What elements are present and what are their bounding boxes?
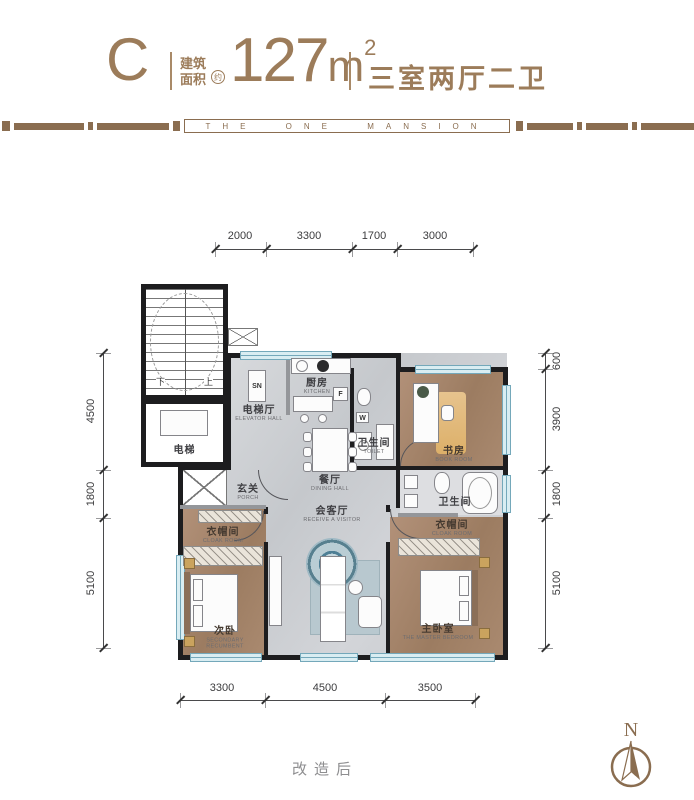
area-unit: m (327, 45, 364, 89)
window (370, 653, 495, 662)
band-square (88, 122, 93, 130)
window (190, 653, 262, 662)
area-label-top: 建筑 (180, 56, 206, 72)
band-title: THE ONE MANSION (184, 119, 510, 133)
dim-bottom-2: 4500 (313, 682, 337, 694)
stove-icon (317, 360, 329, 372)
storage-closet (181, 468, 227, 507)
toilet-fixture (357, 388, 371, 406)
bath-sink (404, 494, 418, 508)
dim-top-2: 3300 (297, 230, 321, 242)
wall-segment (178, 465, 230, 470)
band-bar (97, 123, 169, 130)
washer-box: W (356, 412, 369, 423)
pillow (193, 605, 203, 627)
kitchen-island (293, 396, 333, 412)
layout-description: 三室两厅二卫 (368, 57, 548, 96)
wall-segment (396, 368, 400, 508)
dim-bottom-1: 3300 (210, 682, 234, 694)
dining-chair (303, 447, 312, 457)
wall-segment (386, 542, 390, 658)
dining-chair (348, 432, 357, 442)
elevator: 电梯 (141, 399, 228, 467)
wall-segment (350, 466, 400, 470)
title-divider-2 (349, 52, 351, 90)
fridge-box: F (333, 387, 348, 401)
dim-left-3: 5100 (85, 571, 97, 595)
title-divider-1 (170, 52, 172, 90)
dim-top-3: 1700 (362, 230, 386, 242)
renovation-note: 改造后 (292, 758, 358, 779)
pillow (459, 576, 469, 596)
toilet-fixture (434, 472, 450, 494)
band-square (173, 121, 180, 131)
kitchen-sink (296, 360, 308, 372)
area-value: 127 (230, 30, 327, 92)
pillow (193, 579, 203, 601)
dim-top-4: 3000 (423, 230, 447, 242)
dim-line-left (103, 353, 104, 648)
area-label-bottom: 面积 (180, 72, 206, 88)
dim-right-2: 3900 (551, 407, 563, 431)
bed-master (420, 570, 472, 626)
dining-chair (303, 462, 312, 472)
window (300, 653, 358, 662)
band-square (516, 121, 523, 131)
coffee-table (348, 580, 363, 595)
band-bar (14, 123, 84, 130)
approx-mark: 约 (211, 70, 225, 84)
bed-headboard (472, 570, 478, 626)
dim-line-top (215, 249, 473, 250)
bed-secondary (190, 574, 238, 632)
stair-up-label: 上 (204, 378, 213, 387)
washer-drum (358, 440, 369, 451)
window (502, 385, 511, 455)
plant-icon (417, 386, 429, 398)
wardrobe (398, 538, 480, 556)
wall-segment (286, 353, 290, 415)
compass-needle-filled (631, 741, 640, 780)
floorplan-page: C 建筑 面积 约 127 m 2 三室两厅二卫 THE ONE MANSION… (0, 0, 694, 800)
dim-right-1: 600 (551, 352, 563, 370)
bathtub-basin (468, 477, 492, 509)
tv-cabinet (269, 556, 282, 626)
bathtub (462, 472, 498, 514)
bath-sink (404, 475, 418, 489)
wall-segment (226, 353, 231, 470)
dim-right-4: 5100 (551, 571, 563, 595)
window (502, 475, 511, 513)
compass: N (604, 718, 658, 796)
stool (318, 414, 327, 423)
cloak-shelf (198, 510, 262, 523)
shaft-box (228, 328, 258, 346)
dim-left-2: 1800 (85, 482, 97, 506)
dining-chair (348, 462, 357, 472)
wall-segment (180, 505, 266, 509)
dining-chair (303, 432, 312, 442)
nightstand (184, 558, 195, 569)
window (415, 365, 491, 374)
dim-bottom-3: 3500 (418, 682, 442, 694)
wardrobe (183, 546, 263, 566)
compass-north-label: N (624, 719, 638, 741)
elevator-label: 电梯 (146, 441, 223, 456)
dining-table (312, 428, 348, 472)
book-room-mat (436, 392, 466, 454)
band-square (2, 121, 10, 131)
dining-chair (348, 447, 357, 457)
dim-line-bottom (180, 700, 475, 701)
stool (300, 414, 309, 423)
sn-shaft: SN (248, 370, 266, 402)
dim-right-3: 1800 (551, 482, 563, 506)
band-square (577, 122, 582, 130)
band-bar (527, 123, 573, 130)
band-bar (586, 123, 628, 130)
nightstand (184, 636, 195, 647)
stairwell: 下 上 (141, 284, 228, 400)
pillow (459, 601, 469, 621)
unit-type-letter: C (106, 30, 149, 90)
area-superscript: 2 (364, 37, 376, 59)
band-bar (641, 123, 694, 130)
lounge-chair (358, 596, 382, 628)
desk-chair (441, 405, 454, 421)
compass-needle-outline (622, 741, 631, 780)
dim-line-right (545, 353, 546, 648)
vanity (376, 424, 394, 460)
wall-segment (264, 542, 268, 658)
dim-top-1: 2000 (228, 230, 252, 242)
wall-segment (396, 466, 507, 470)
nightstand (479, 628, 490, 639)
elevator-car (160, 410, 208, 436)
nightstand (479, 557, 490, 568)
band-square (632, 122, 637, 130)
stair-down-label: 下 (156, 378, 165, 387)
sofa (320, 556, 346, 642)
dim-left-1: 4500 (85, 399, 97, 423)
